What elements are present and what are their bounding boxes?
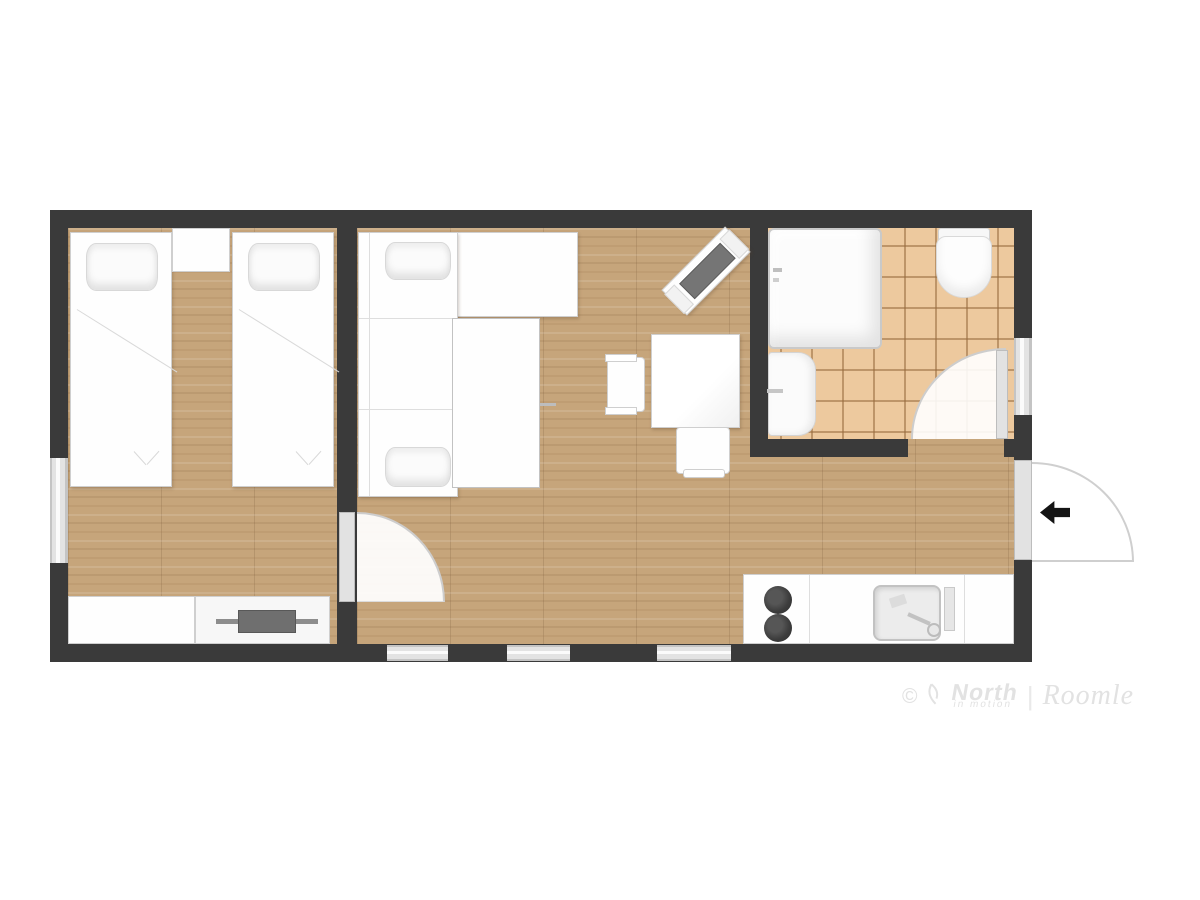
duvet-fold [147,451,160,465]
window-living-bottom-3 [657,645,731,661]
sofa-armrest-pillow-top [385,242,451,280]
bathtub-drain-control [773,278,779,282]
north-brand: North in motion [949,683,1020,709]
sofa-back-seam [369,233,370,496]
bathroom-left-wall [750,210,768,457]
copyright-icon: © [902,686,917,707]
north-leaf-icon [924,681,945,711]
chair-armrest [605,407,637,415]
tv-screen [238,610,296,633]
pillow [86,243,158,291]
duvet-fold [77,309,178,372]
twin-bed-left [70,232,172,487]
sofa-armrest-pillow-bottom [385,447,451,487]
sofa-cushion-seam [359,409,457,410]
cooktop-burner-front [764,614,792,642]
dining-chair-bottom [676,427,730,474]
bathtub-faucet [773,268,782,272]
window-bathroom-right [1014,338,1032,415]
bedroom-divider-wall-upper [337,210,357,512]
bathroom-bottom-wall [750,439,908,457]
pillow [248,243,320,291]
window-living-bottom-2 [507,645,570,661]
sofa-bed-mattress [452,318,540,488]
chair-armrest [605,354,637,362]
north-brand-subtitle: in motion [953,701,1013,709]
chair-back [683,469,725,478]
floor-plan-page: © North in motion | Roomle [0,0,1200,900]
dining-chair-left [607,357,645,412]
cutting-board [944,587,955,631]
washbasin-faucet [767,389,783,393]
duvet-fold [134,451,147,465]
dining-table [651,334,740,428]
watermark: © North in motion | Roomle [902,680,1134,712]
duvet-fold [309,451,322,465]
cooktop-burner-back [764,586,792,614]
duvet-fold [296,451,309,465]
nightstand [172,228,230,272]
entry-door-leaf [1014,460,1032,560]
counter-seam [964,575,965,643]
dresser-left-section [68,596,195,644]
washbasin [768,352,816,436]
duvet-fold [239,309,340,372]
sofa-cushion-seam [359,318,457,319]
bathroom-door-leaf [996,350,1008,439]
sofa-bed-handle [540,403,556,406]
bathtub [768,228,882,349]
window-living-bottom-1 [387,645,448,661]
apartment-floor-plan [50,210,1032,662]
sofa-body [358,232,458,497]
kitchenette-counter [743,574,1014,644]
bedroom-divider-wall-lower [337,602,357,662]
bathroom-bottom-wall-stub [1004,439,1018,457]
window-bedroom-left [50,458,68,563]
toilet-bowl [936,236,992,298]
roomle-logo: Roomle [1043,680,1135,712]
bedroom-door-leaf [339,512,355,602]
twin-bed-right [232,232,334,487]
watermark-separator: | [1027,681,1034,712]
counter-seam [809,575,810,643]
